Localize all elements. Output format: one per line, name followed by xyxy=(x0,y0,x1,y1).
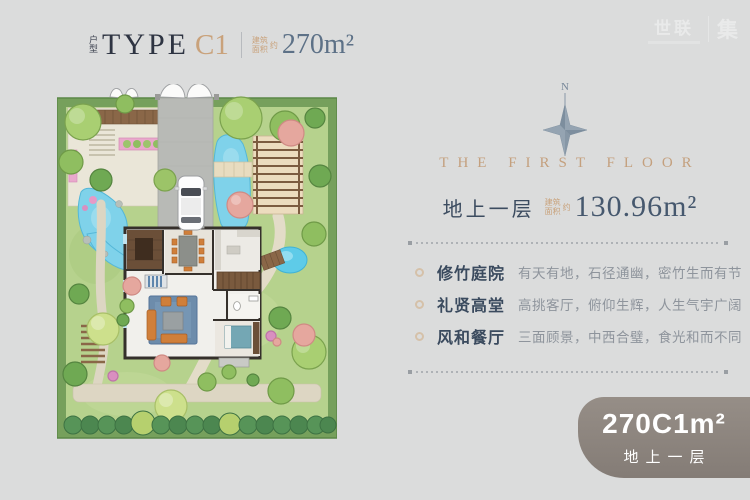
armchair xyxy=(177,297,187,306)
floor-area-note-line2: 面积 xyxy=(545,207,561,216)
area-note-line2: 面积 xyxy=(252,45,268,54)
house-floorplan xyxy=(123,216,260,367)
watermark-divider xyxy=(708,16,709,42)
pool-bridge xyxy=(214,162,252,177)
unit-code: C1 xyxy=(195,29,229,62)
ring-bullet-icon xyxy=(415,268,424,277)
sofa xyxy=(147,310,156,340)
feature-desc: 三面顾景，中西合璧，食光和而不同 xyxy=(518,326,742,346)
badge-title: 270C1m² xyxy=(602,408,726,440)
feature-row: 礼贤高堂 高挑客厅，俯仰生辉，人生气宇广阔 xyxy=(415,288,735,320)
unit-category-label: 户型 xyxy=(86,35,97,59)
watermark-subtext-bar xyxy=(648,41,700,44)
feature-list: 修竹庭院 有天有地，石径通幽，密竹生而有节 礼贤高堂 高挑客厅，俯仰生辉，人生气… xyxy=(415,256,735,352)
area-note-line1: 建筑 xyxy=(252,36,268,45)
floor-title: THE FIRST FLOOR xyxy=(405,155,735,172)
floor-area-line: 地上一层 建筑 面积 约 130.96m² xyxy=(405,190,735,224)
feature-row: 风和餐厅 三面顾景，中西合璧，食光和而不同 xyxy=(415,320,735,352)
badge-subtitle: 地上一层 xyxy=(616,446,711,467)
unit-badge: 270C1m² 地上一层 xyxy=(578,397,750,478)
gate-leaf xyxy=(187,84,212,98)
watermark-suffix: 集 xyxy=(717,14,738,44)
type-word: TYPE xyxy=(102,28,189,62)
floor-area-note-suffix: 约 xyxy=(563,202,571,213)
armchair xyxy=(161,297,171,306)
area-note: 建筑 面积 约 xyxy=(252,36,278,54)
sofa xyxy=(161,334,187,343)
staircase xyxy=(217,272,260,290)
watermark-brand: 世联 xyxy=(654,14,694,39)
compass-icon: N xyxy=(533,76,597,160)
divider-bottom xyxy=(408,370,728,374)
feature-row: 修竹庭院 有天有地，石径通幽，密竹生而有节 xyxy=(415,256,735,288)
floor-name: 地上一层 xyxy=(443,193,535,222)
brand-watermark: 世联 集 xyxy=(648,14,738,44)
feature-name: 风和餐厅 xyxy=(437,324,505,348)
coffee-table xyxy=(163,312,183,330)
window xyxy=(123,234,127,244)
feature-name: 礼贤高堂 xyxy=(437,292,505,316)
divider-top xyxy=(408,241,728,245)
feature-name: 修竹庭院 xyxy=(437,260,505,284)
floor-area-value: 130.96m² xyxy=(575,190,698,224)
gate-leaf xyxy=(160,84,185,98)
brochure-page: 户型 TYPE C1 建筑 面积 约 270m² 世联 集 N THE F xyxy=(0,0,750,500)
rear-porch xyxy=(219,358,249,367)
dining-table xyxy=(179,236,197,266)
site-plan-illustration xyxy=(57,84,337,440)
feature-desc: 高挑客厅，俯仰生辉，人生气宇广阔 xyxy=(518,294,742,314)
title-divider xyxy=(241,32,242,58)
feature-desc: 有天有地，石径通幽，密竹生而有节 xyxy=(518,262,742,282)
total-area-value: 270m² xyxy=(282,29,354,61)
floor-area-note: 建筑 面积 约 xyxy=(545,198,571,216)
ring-bullet-icon xyxy=(415,300,424,309)
pergola xyxy=(253,136,303,214)
area-note-suffix: 约 xyxy=(270,40,278,51)
compass-north-letter: N xyxy=(561,81,569,93)
wardrobe xyxy=(253,322,260,354)
ring-bullet-icon xyxy=(415,332,424,341)
unit-title: 户型 TYPE C1 建筑 面积 约 270m² xyxy=(86,28,354,62)
floor-area-note-line1: 建筑 xyxy=(545,198,561,207)
car xyxy=(175,176,207,230)
